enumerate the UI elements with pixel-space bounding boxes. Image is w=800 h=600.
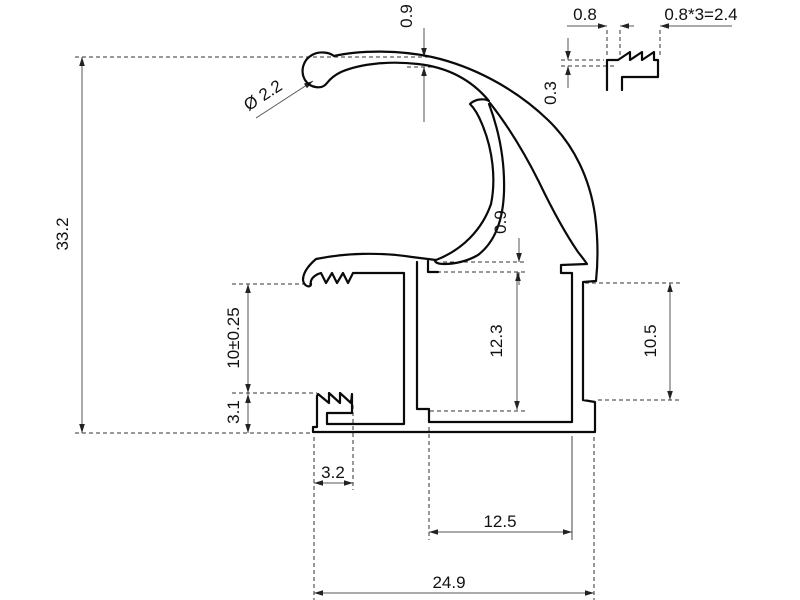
dim-hook-width: 3.2 bbox=[321, 463, 345, 482]
dimension-labels: 0.9 0.8 0.8*3=2.4 0.3 Ø 2.2 33.2 0.9 12.… bbox=[53, 4, 738, 592]
dim-middle-cavity-height: 12.3 bbox=[487, 324, 506, 357]
profile-outline bbox=[303, 52, 598, 432]
profile-drawing: 0.9 0.8 0.8*3=2.4 0.3 Ø 2.2 33.2 0.9 12.… bbox=[0, 0, 800, 600]
dim-detail-tooth-pitch: 0.8 bbox=[573, 5, 597, 24]
detail-view-profile bbox=[607, 52, 658, 90]
dim-overall-width: 24.9 bbox=[432, 573, 465, 592]
dim-middle-cavity-width: 12.5 bbox=[483, 512, 516, 531]
dim-clip-opening-height: 10±0.25 bbox=[224, 307, 243, 368]
dimension-lines bbox=[82, 26, 732, 593]
drawing-canvas: 0.9 0.8 0.8*3=2.4 0.3 Ø 2.2 33.2 0.9 12.… bbox=[0, 0, 800, 600]
profile-geometry bbox=[303, 52, 658, 432]
dim-top-wall-thickness: 0.9 bbox=[397, 4, 416, 28]
dim-detail-teeth-span: 0.8*3=2.4 bbox=[664, 5, 737, 24]
dim-right-recess-height: 10.5 bbox=[641, 324, 660, 357]
dim-hook-height: 3.1 bbox=[224, 400, 243, 424]
dim-inner-wall-gap: 0.9 bbox=[491, 210, 510, 234]
dim-tip-diameter: Ø 2.2 bbox=[240, 76, 285, 115]
extension-lines bbox=[75, 30, 681, 600]
dim-overall-height: 33.2 bbox=[53, 217, 72, 250]
dim-detail-tooth-depth: 0.3 bbox=[541, 81, 560, 105]
